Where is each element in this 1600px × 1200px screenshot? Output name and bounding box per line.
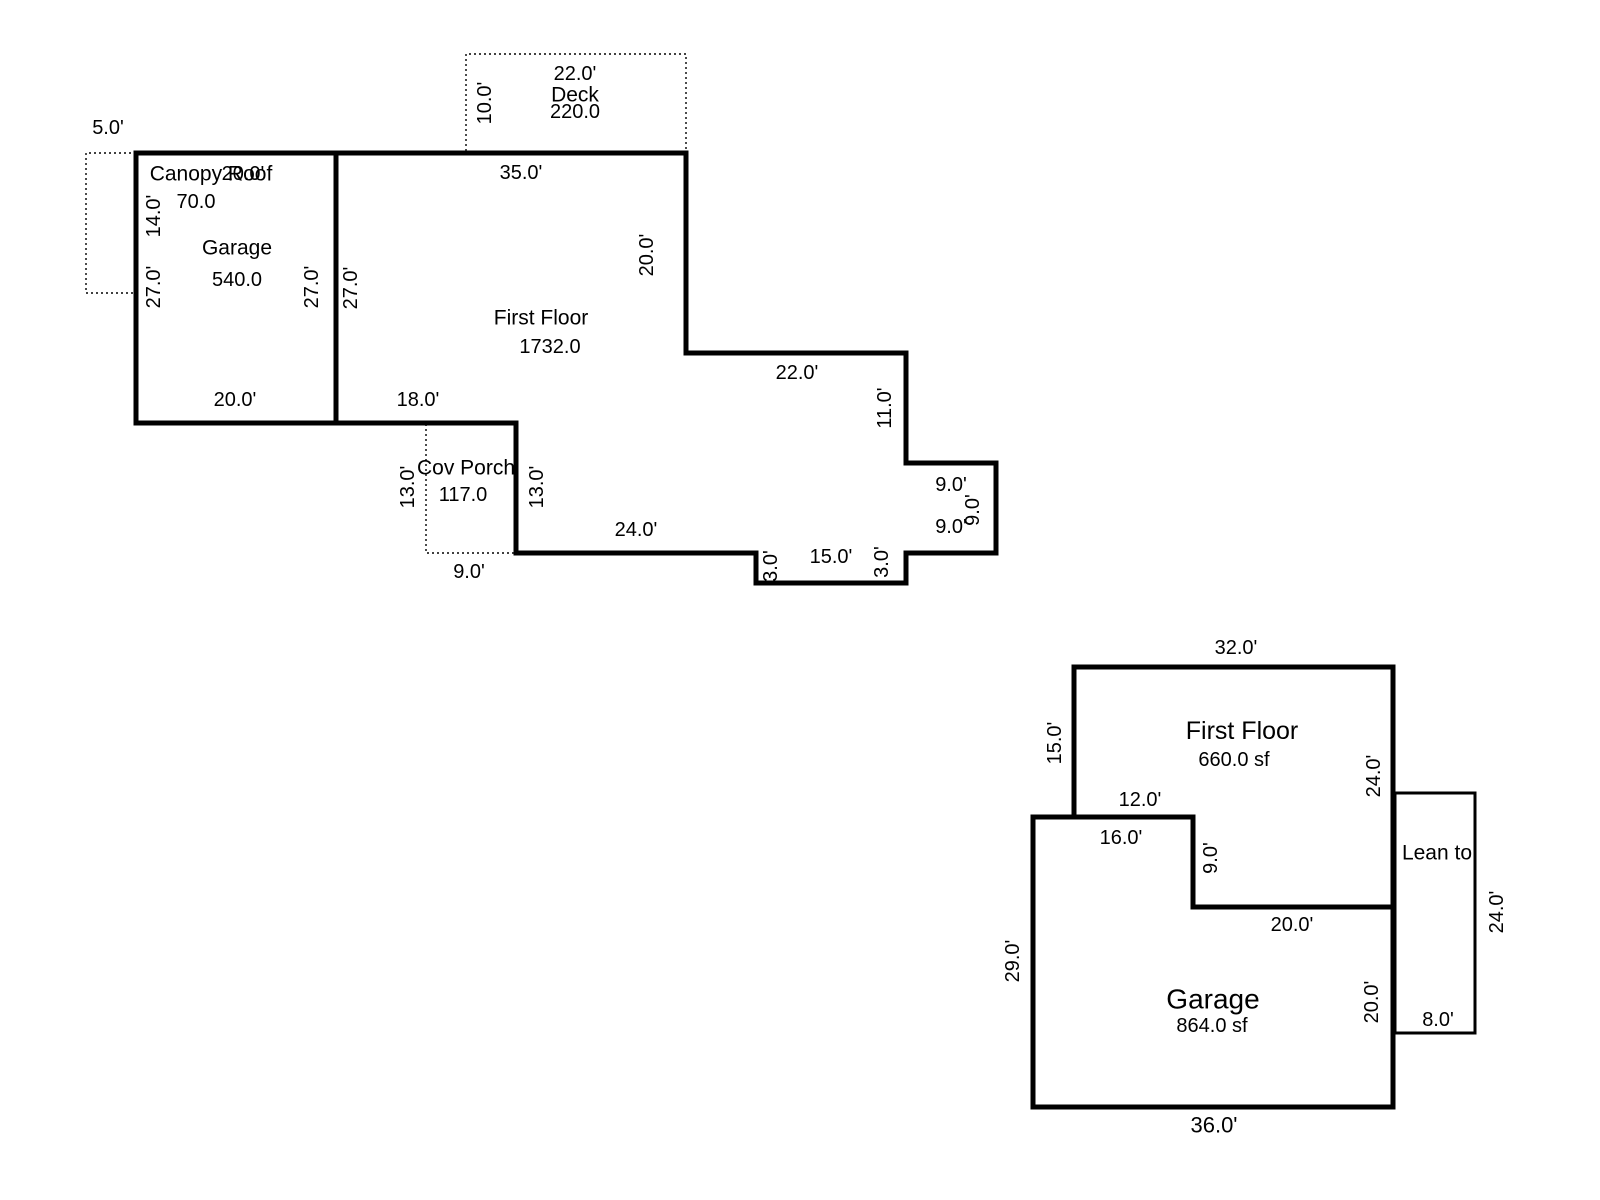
dim-leanto-right: 24.0' [1486, 891, 1508, 934]
dim-first-floor-bottom-left: 18.0' [397, 389, 440, 411]
canopy-roof-outline [86, 153, 136, 293]
dim-canopy-depth: 14.0' [143, 195, 165, 238]
dim-garage-right-inner: 27.0' [301, 266, 323, 309]
sketch1-main-residence: 5.0' Canopy Roof 20.0' 70.0 14.0' 27.0' … [86, 54, 996, 583]
first-floor-area: 1732.0 [519, 336, 580, 358]
dim-ff2-left: 15.0' [1044, 722, 1066, 765]
canopy-roof-area: 70.0 [177, 191, 216, 213]
dim-bottom-left-run: 24.0' [615, 519, 658, 541]
first-floor-label: First Floor [494, 307, 589, 330]
cov-porch-label: Cov Porch [417, 457, 515, 480]
dim-step-depth: 11.0' [874, 387, 896, 428]
lean-to-outline [1395, 793, 1475, 1033]
dim-ff2-bottom: 20.0' [1271, 914, 1314, 936]
dim-notch-right-side: 3.0' [871, 546, 893, 578]
dim-ff2-notch-width: 12.0' [1119, 789, 1162, 811]
dim-canopy-width: 5.0' [92, 117, 124, 139]
dim-first-floor-right: 20.0' [636, 234, 658, 277]
dim-bump-bottom: 9.0' [935, 516, 967, 538]
garage-2-label: Garage [1166, 984, 1259, 1015]
dim-first-floor-top: 35.0' [500, 162, 543, 184]
dim-garage2-right: 20.0' [1361, 981, 1383, 1024]
sketch2-secondary-structure: 32.0' 15.0' First Floor 660.0 sf 24.0' 1… [1002, 637, 1508, 1138]
first-floor-outline-2 [1074, 667, 1393, 907]
dim-bump-top: 9.0' [935, 474, 967, 496]
garage-label: Garage [202, 237, 272, 260]
dim-leanto-bottom: 8.0' [1422, 1009, 1454, 1031]
dim-porch-bottom: 9.0' [453, 561, 485, 583]
dim-deck-depth: 10.0' [474, 82, 496, 125]
lean-to-label: Lean to [1402, 842, 1472, 865]
first-floor-2-area: 660.0 sf [1198, 749, 1270, 771]
floorplan-sketch-canvas: 5.0' Canopy Roof 20.0' 70.0 14.0' 27.0' … [0, 0, 1600, 1200]
dim-garage-right-outer: 27.0' [340, 267, 362, 310]
dim-deck-width: 22.0' [554, 63, 597, 85]
dim-garage-bottom: 20.0' [214, 389, 257, 411]
first-floor-2-label: First Floor [1186, 717, 1299, 745]
dim-ff2-right: 24.0' [1363, 755, 1385, 798]
dim-garage-left: 27.0' [143, 266, 165, 309]
deck-area: 220.0 [550, 101, 600, 123]
dim-garage2-left: 29.0' [1002, 940, 1024, 983]
dim-garage-top: 20.0' [222, 163, 265, 185]
dim-notch-bottom: 15.0' [810, 546, 853, 568]
dim-step-width: 22.0' [776, 362, 819, 384]
garage-2-area: 864.0 sf [1176, 1015, 1248, 1037]
dim-porch-left: 13.0' [397, 466, 419, 509]
first-floor-outline [336, 153, 996, 583]
garage-area: 540.0 [212, 269, 262, 291]
cov-porch-area: 117.0 [439, 484, 488, 506]
dim-garage2-bottom: 36.0' [1190, 1113, 1237, 1138]
dim-notch-left-side: 3.0' [760, 550, 782, 582]
dim-porch-right: 13.0' [526, 466, 548, 509]
dim-ff2-top: 32.0' [1215, 637, 1258, 659]
dim-garage2-top: 16.0' [1100, 827, 1143, 849]
dim-ff2-step: 9.0' [1200, 842, 1222, 874]
